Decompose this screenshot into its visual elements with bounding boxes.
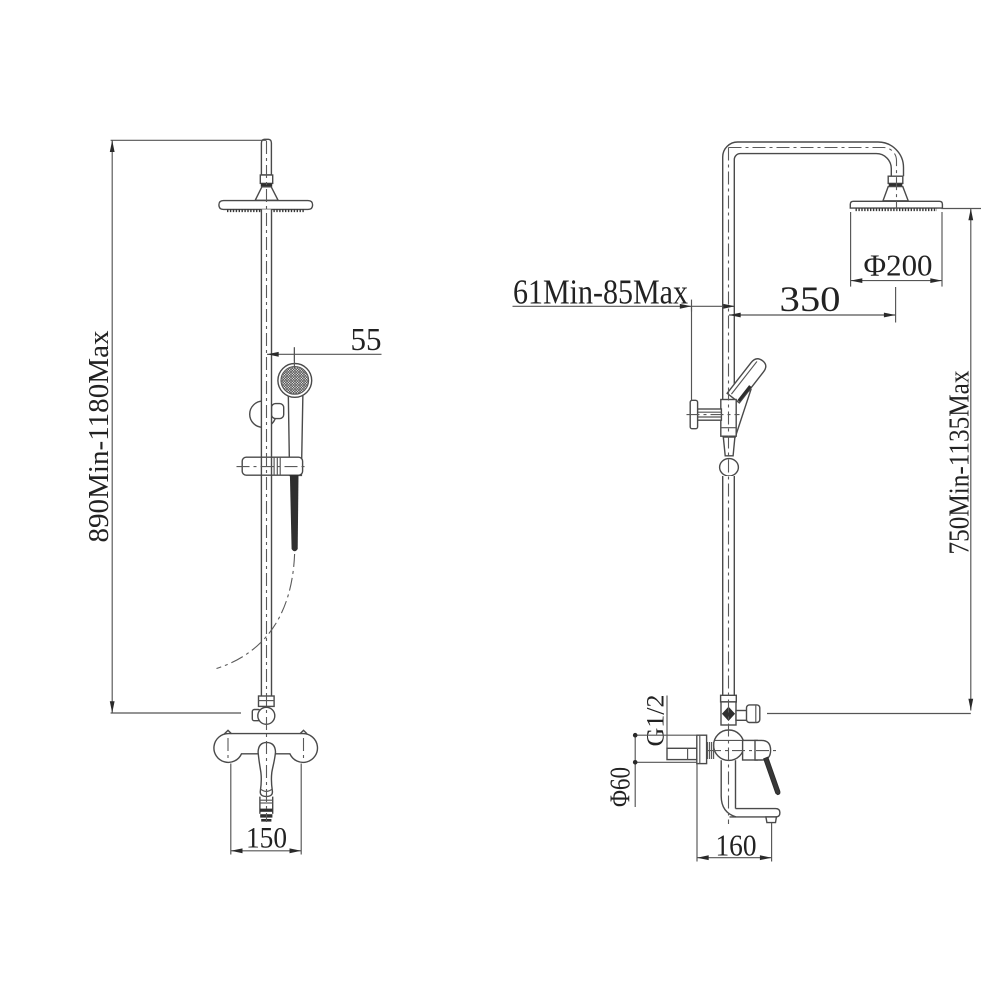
svg-text:350: 350 [780,279,841,319]
svg-text:Φ200: Φ200 [864,248,933,283]
svg-text:750Min-1135Max: 750Min-1135Max [944,370,976,554]
svg-text:G1/2: G1/2 [643,695,670,747]
svg-text:55: 55 [351,321,382,357]
svg-text:150: 150 [246,822,287,855]
svg-text:160: 160 [716,828,757,863]
svg-text:Φ60: Φ60 [605,767,637,807]
svg-text:890Min-1180Max: 890Min-1180Max [83,330,115,542]
